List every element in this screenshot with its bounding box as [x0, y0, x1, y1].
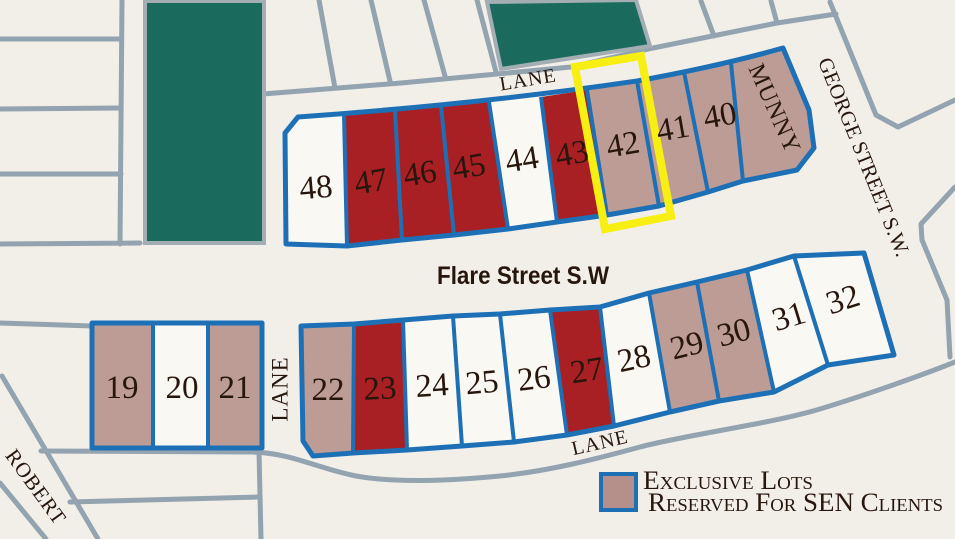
- svg-text:22: 22: [312, 372, 345, 408]
- svg-text:Flare Street S.W: Flare Street S.W: [437, 262, 609, 290]
- svg-text:27: 27: [568, 351, 606, 392]
- svg-text:Reserved For SEN Clients: Reserved For SEN Clients: [648, 488, 943, 517]
- svg-text:42: 42: [604, 124, 643, 165]
- svg-text:43: 43: [553, 133, 592, 174]
- svg-text:40: 40: [701, 95, 740, 136]
- svg-text:48: 48: [298, 169, 334, 208]
- svg-text:47: 47: [352, 162, 390, 203]
- svg-text:46: 46: [401, 154, 439, 195]
- svg-text:20: 20: [166, 370, 199, 406]
- svg-text:44: 44: [503, 140, 541, 181]
- svg-text:LANE: LANE: [268, 356, 293, 421]
- svg-text:23: 23: [363, 370, 398, 408]
- svg-text:25: 25: [464, 364, 500, 403]
- svg-text:19: 19: [106, 370, 139, 406]
- svg-text:21: 21: [219, 370, 252, 406]
- svg-text:24: 24: [414, 367, 449, 405]
- svg-text:41: 41: [654, 108, 693, 149]
- svg-text:45: 45: [450, 147, 488, 188]
- svg-text:26: 26: [515, 359, 552, 399]
